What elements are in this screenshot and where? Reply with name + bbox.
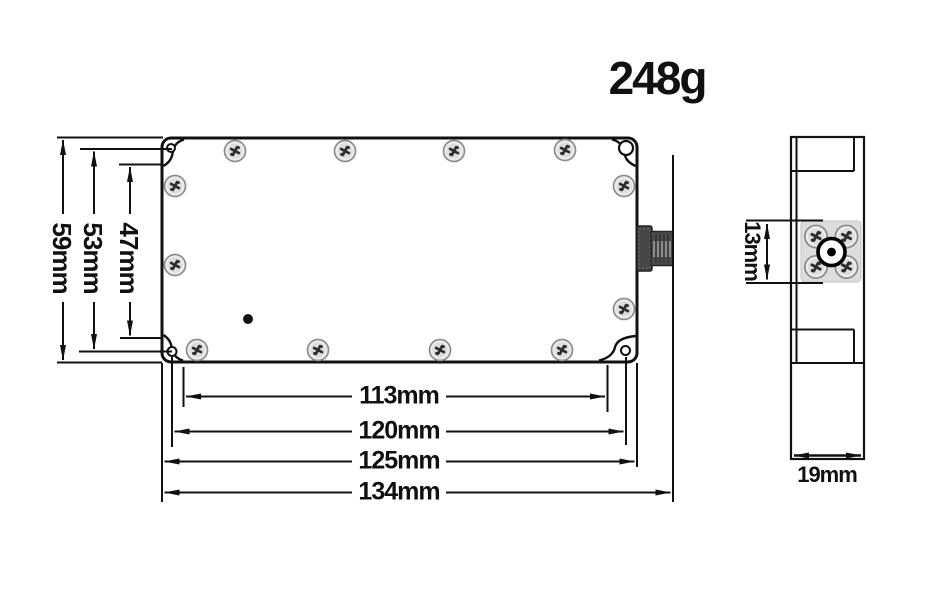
side-view xyxy=(746,137,864,459)
screw-icon xyxy=(187,340,208,361)
screw-icon xyxy=(430,340,451,361)
screw-icon xyxy=(308,340,329,361)
screw-icon xyxy=(165,176,186,197)
dim-label-53mm: 53mm xyxy=(80,222,106,293)
dim-label-120mm: 120mm xyxy=(358,419,439,444)
connector-plate xyxy=(801,221,861,282)
screw-icon xyxy=(614,299,635,320)
screw-icon xyxy=(225,141,246,162)
drawing-linework xyxy=(0,0,929,605)
rf-connector xyxy=(637,226,673,271)
enclosure-body xyxy=(162,138,637,362)
screw-icon xyxy=(444,141,465,162)
dim-label-59mm: 59mm xyxy=(49,222,75,293)
dim-label-125mm: 125mm xyxy=(358,449,439,474)
dim-label-47mm: 47mm xyxy=(116,222,142,293)
corner-hole-top-right xyxy=(619,141,633,155)
screw-icon xyxy=(335,141,356,162)
dim-label-19mm: 19mm xyxy=(797,464,857,486)
dim-label-113mm: 113mm xyxy=(359,384,439,409)
dim-label-13mm: 13mm xyxy=(741,221,763,281)
weight-label: 248g xyxy=(609,55,706,101)
top-view xyxy=(162,138,673,362)
screw-icon xyxy=(165,255,186,276)
screw-icon xyxy=(552,340,573,361)
corner-hole-bottom-right xyxy=(621,346,630,355)
screw-icon xyxy=(614,176,635,197)
dimension-drawing: 248g 59mm 53mm 47mm 113mm 120mm 125mm 13… xyxy=(0,0,929,605)
screw-icon xyxy=(555,140,576,161)
dim-label-134mm: 134mm xyxy=(358,480,439,505)
indicator-dot xyxy=(243,314,253,324)
